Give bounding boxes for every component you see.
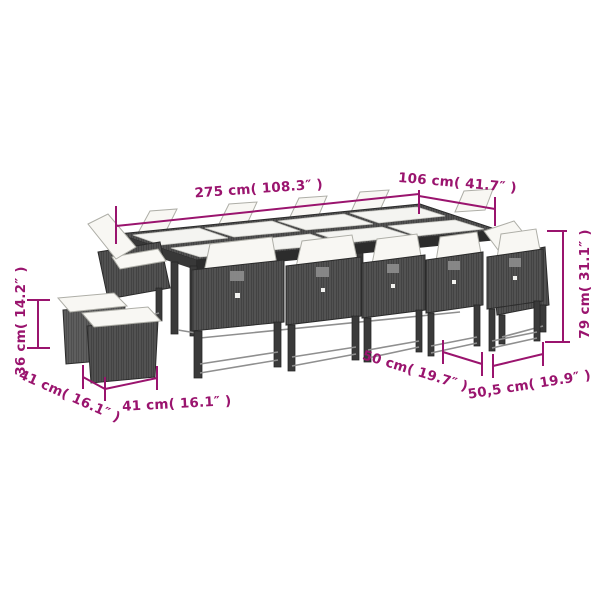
chair-leg — [194, 331, 202, 378]
stools — [58, 293, 161, 383]
stool-body — [87, 320, 158, 383]
chair-leg — [416, 310, 422, 352]
chair-leg — [534, 301, 540, 341]
front-chair — [426, 232, 483, 356]
chair-leg — [540, 305, 546, 332]
dim-chair-height: 79 cm( 31.1″ ) — [545, 229, 593, 342]
dim-label-stool-width: 41 cm( 16.1″ ) — [122, 393, 232, 415]
dim-label-chair-height: 79 cm( 31.1″ ) — [577, 229, 593, 338]
dim-label-stool-height: 36 cm( 14.2″ ) — [13, 266, 29, 375]
chair-stretcher — [431, 337, 477, 353]
front-chair — [362, 234, 425, 362]
stool — [82, 307, 161, 383]
chair-leg — [474, 305, 480, 346]
table-leg — [171, 262, 178, 334]
diagram-canvas: 275 cm( 108.3″ ) 106 cm( 41.7″ ) 79 cm( … — [0, 0, 600, 600]
dim-stool-height: 36 cm( 14.2″ ) — [13, 266, 50, 375]
dim-label-chair-width: 50,5 cm( 19.9″ ) — [467, 367, 592, 402]
dim-chair-width: 50,5 cm( 19.9″ ) — [467, 342, 592, 403]
chair-stretcher — [292, 347, 356, 366]
product-dimension-diagram: 275 cm( 108.3″ ) 106 cm( 41.7″ ) 79 cm( … — [0, 0, 600, 600]
chair-leg — [428, 313, 434, 356]
chair-leg — [288, 325, 295, 371]
chair-stretcher — [200, 352, 278, 373]
dim-label-table-width: 106 cm( 41.7″ ) — [397, 170, 517, 196]
chair-leg — [489, 309, 495, 351]
